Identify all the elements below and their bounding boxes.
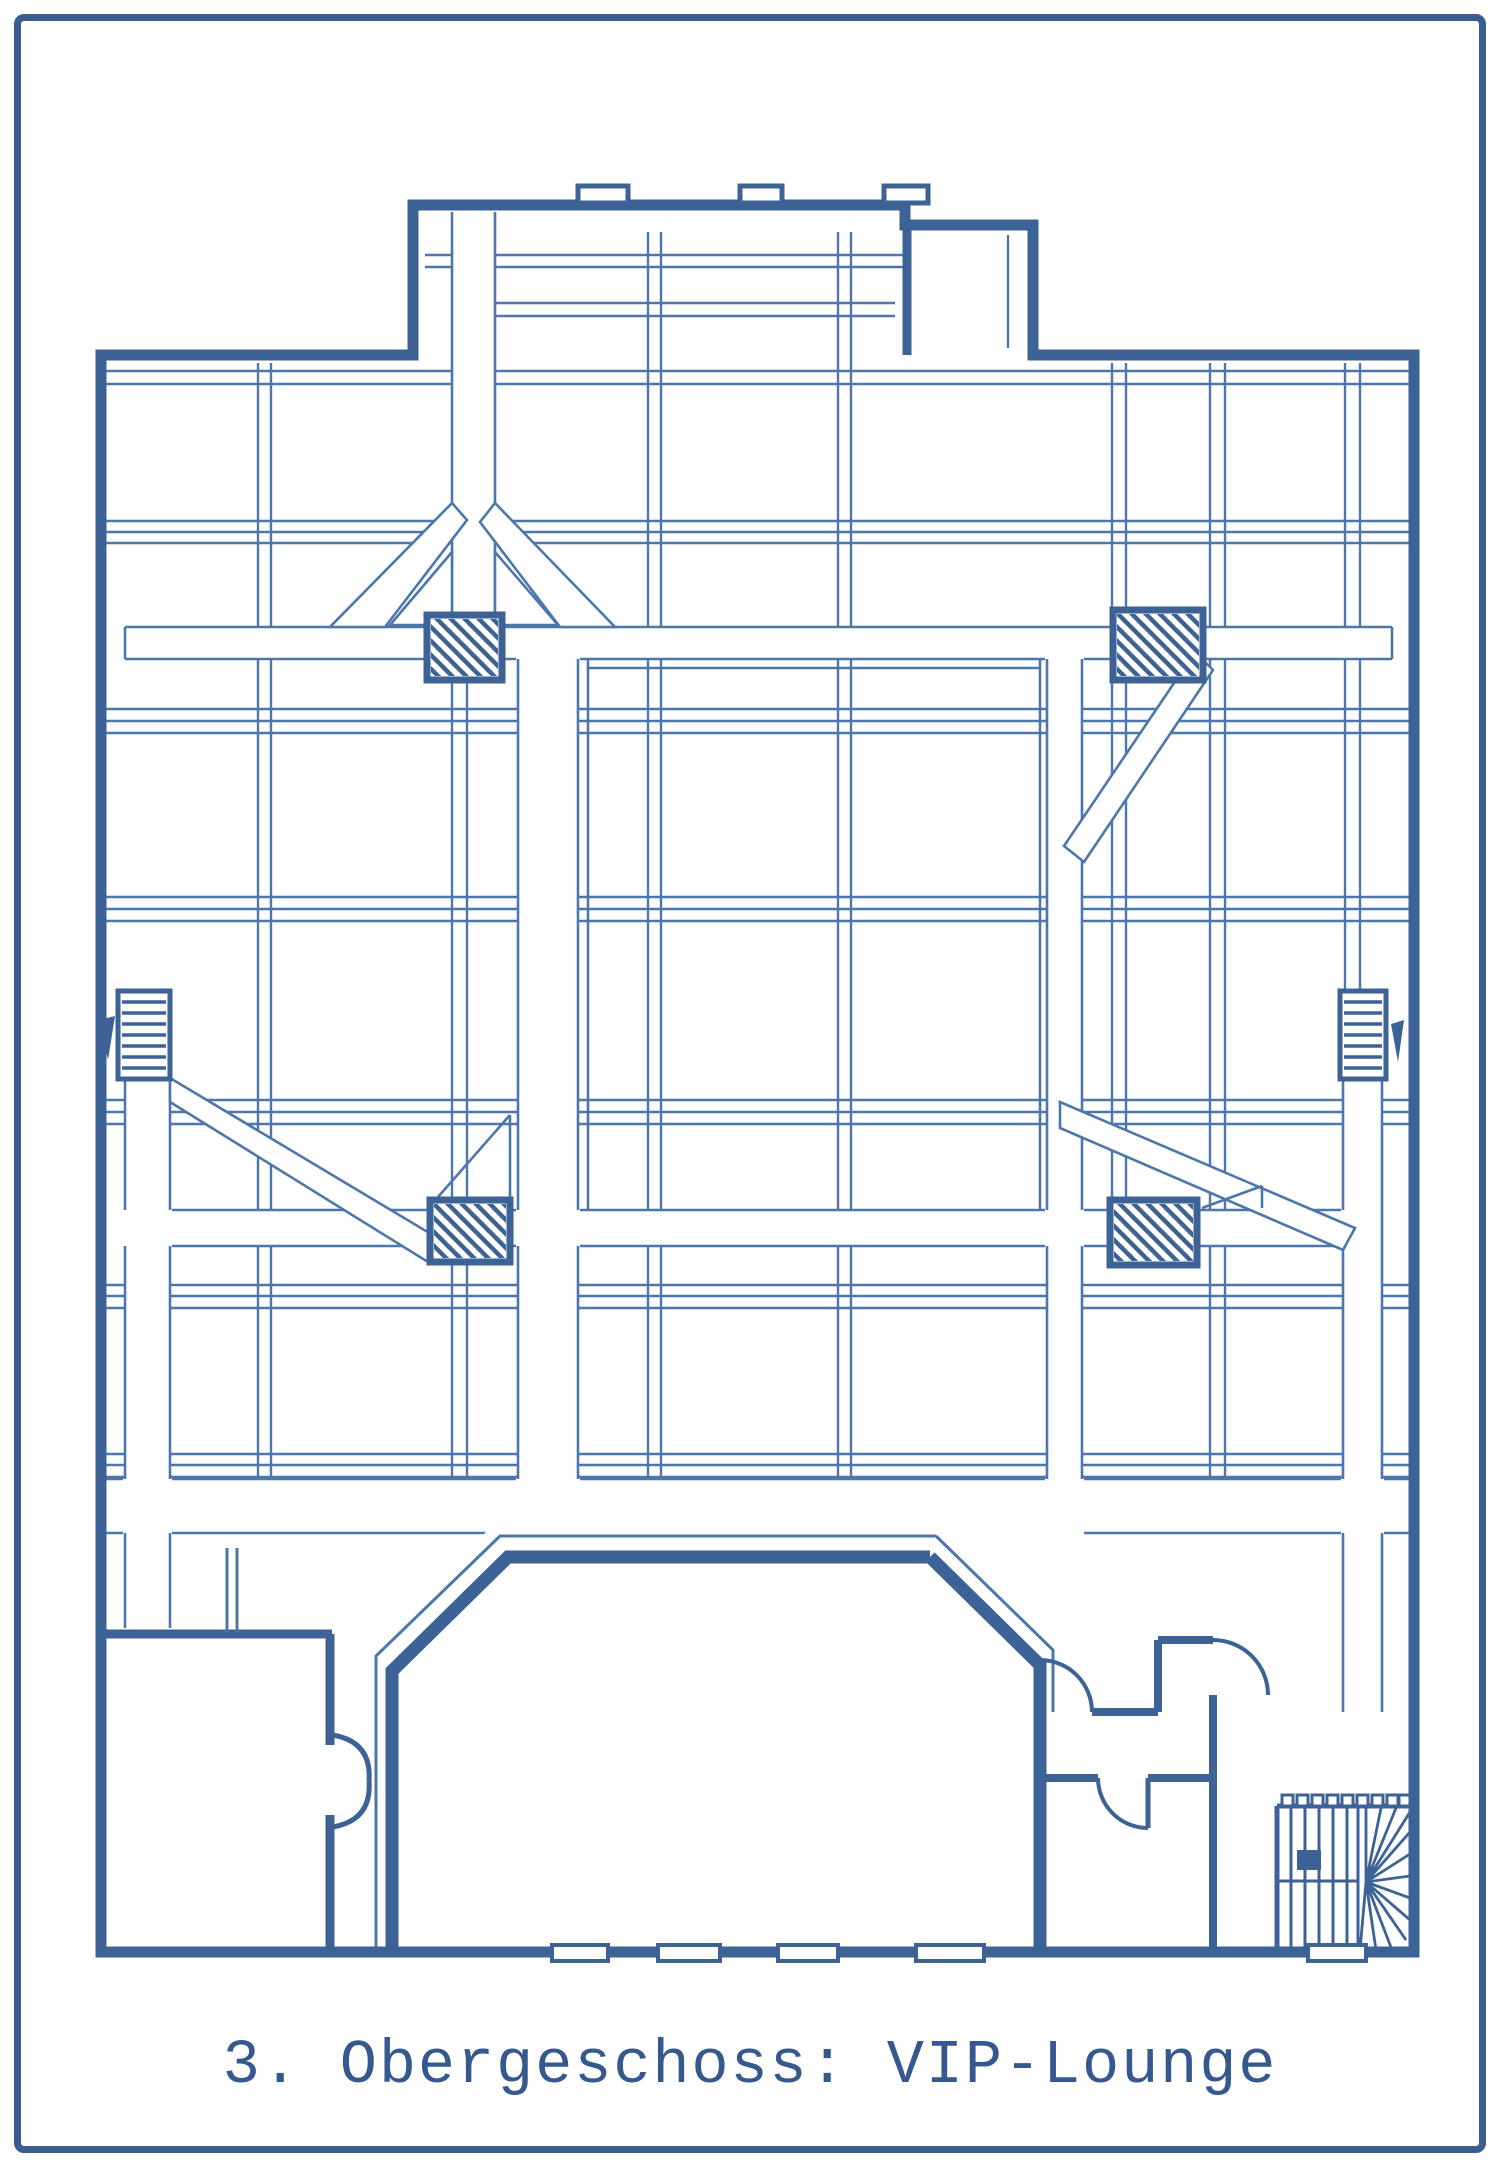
direction-arrow-right	[1391, 1020, 1404, 1062]
ladder-icon-right	[1340, 991, 1386, 1079]
stair-nosing-ticks	[1282, 1795, 1410, 1806]
ladder-icon-left	[118, 991, 170, 1079]
winder-stair	[1277, 1795, 1412, 1950]
hatched-column	[1113, 610, 1203, 680]
wall-ladders	[99, 991, 1404, 1079]
room-left-partition	[227, 1548, 237, 1632]
vip-lounge-hall	[372, 1528, 1058, 1952]
window-grid	[105, 232, 1412, 1479]
plan-caption: 3. Obergeschoss: VIP-Lounge	[0, 2030, 1500, 2101]
stair-post	[1297, 1850, 1321, 1870]
corridors	[105, 212, 1412, 1712]
hatched-column	[427, 615, 502, 680]
door-arc	[1213, 1640, 1268, 1695]
blueprint-sheet: 3. Obergeschoss: VIP-Lounge	[0, 0, 1500, 2167]
brace-triangle-lower-left	[438, 1115, 510, 1200]
floor-plan-drawing	[0, 0, 1500, 2167]
hatched-column	[1110, 1200, 1197, 1265]
hatched-column	[430, 1200, 510, 1262]
